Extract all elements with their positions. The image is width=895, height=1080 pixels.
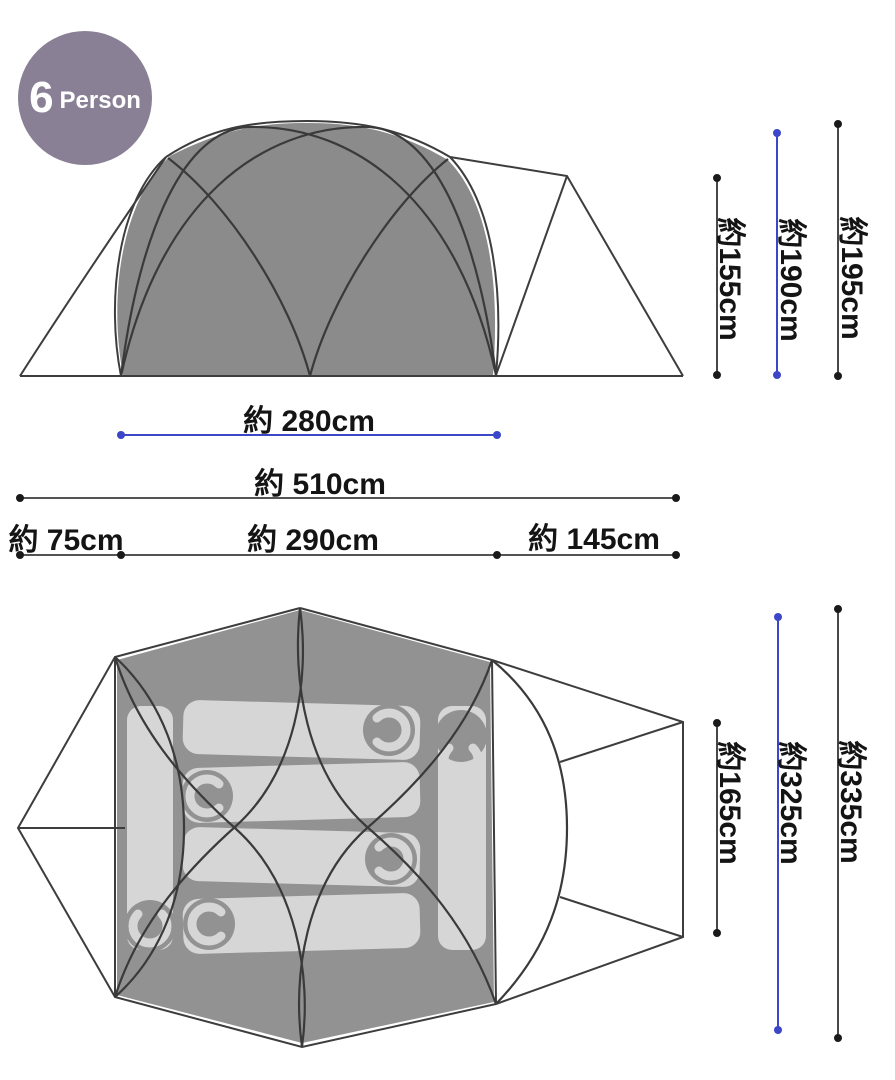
tent-spec-diagram: 6 Person 約155cm 約190cm 約195cm 約 280cm 約 …: [0, 0, 895, 1080]
tent-side-view-drawing: [20, 121, 683, 376]
tent-diagram-canvas: [0, 0, 895, 1080]
dim-label-total-depth: 約335cm: [832, 740, 876, 863]
dim-label-inner-peak-height: 約190cm: [772, 218, 816, 341]
dim-label-mid-length: 約 290cm: [247, 515, 379, 559]
dim-label-total-length: 約 510cm: [254, 459, 386, 503]
dim-label-inner-depth: 約165cm: [711, 741, 755, 864]
dim-label-rear-length: 約 75cm: [8, 515, 123, 559]
capacity-badge: 6 Person: [18, 31, 152, 165]
dim-label-total-height: 約195cm: [833, 216, 877, 339]
capacity-number: 6: [29, 76, 53, 120]
dim-label-inner-width: 約 280cm: [243, 396, 375, 440]
side-vestibule-inner-edge: [496, 176, 567, 375]
dim-label-mid-depth: 約325cm: [772, 741, 816, 864]
top-vestibule-inner-line-lower: [560, 897, 683, 937]
top-inner-floor-fill: [117, 610, 494, 1043]
top-right-door-arc: [492, 660, 567, 1004]
capacity-label: Person: [60, 89, 141, 113]
top-vestibule-outline: [492, 660, 683, 1004]
dim-label-front-length: 約 145cm: [528, 514, 660, 558]
dim-label-inner-height: 約155cm: [711, 217, 755, 340]
top-vestibule-inner-line-upper: [560, 722, 683, 762]
tent-top-view-drawing: [18, 608, 683, 1047]
side-inner-tent-silhouette: [117, 123, 495, 375]
